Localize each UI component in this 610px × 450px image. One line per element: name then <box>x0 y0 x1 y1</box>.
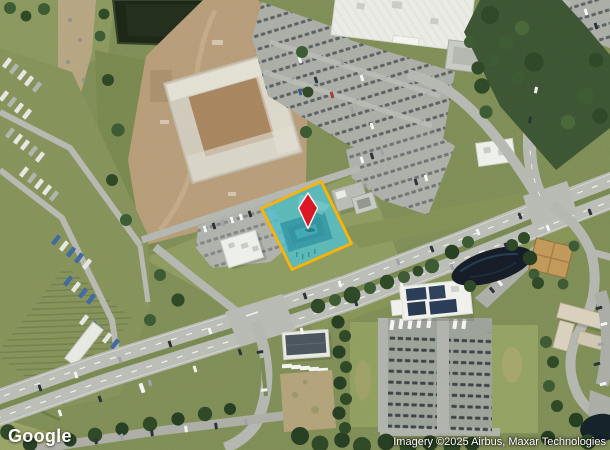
imagery-attribution: Imagery ©2025 Airbus, Maxar Technologies <box>393 436 606 448</box>
satellite-grain <box>0 0 610 450</box>
google-logo[interactable]: Google <box>8 426 72 447</box>
map-viewport[interactable]: Google Imagery ©2025 Airbus, Maxar Techn… <box>0 0 610 450</box>
